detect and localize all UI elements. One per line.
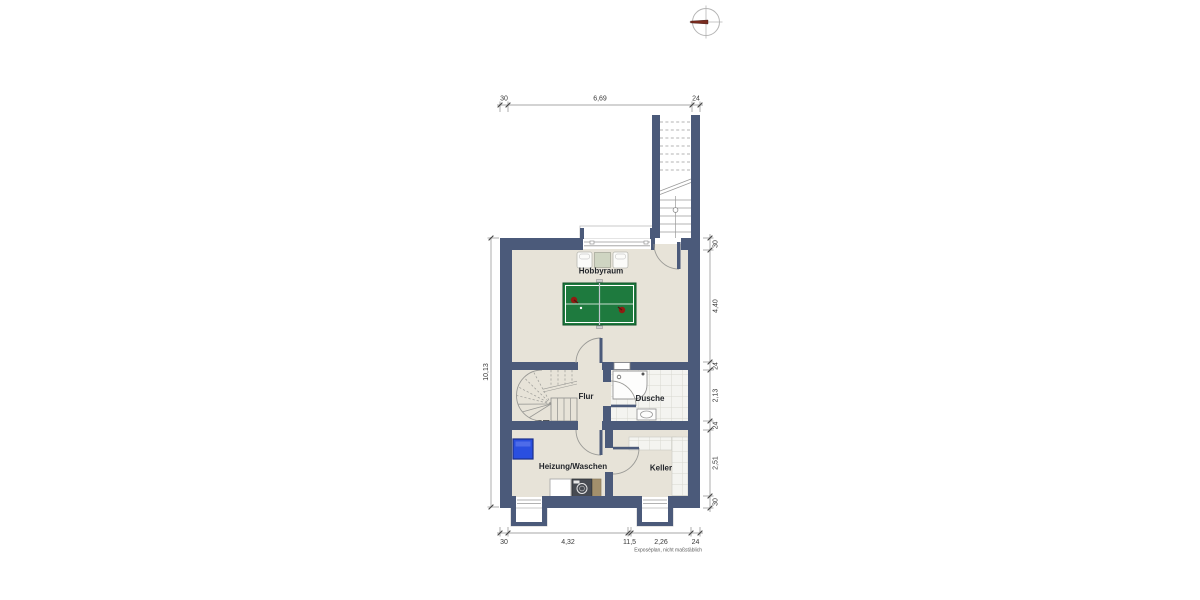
hobbyraum-window [583,239,651,249]
dim-label: 24 [713,422,720,430]
dim-label: 30 [500,539,508,546]
dryer-unit [572,479,592,497]
floor-plan-page: Hobbyraum Flur Dusche Heizung/Waschen Ke… [0,0,1200,600]
table-tennis-ball [580,307,582,309]
dimension-left: 10,13 [483,236,499,510]
dim-label: 24 [692,96,700,103]
exterior-staircase [660,122,691,238]
dim-label: 24 [713,362,720,370]
dim-label: 4,40 [713,299,720,313]
dim-label: 2,13 [713,389,720,403]
dim-label: 11,5 [623,539,636,546]
dim-label: 30 [500,96,508,103]
window-well-left [511,508,547,526]
heizung-window [516,497,542,507]
room-label-dusche: Dusche [636,394,665,403]
room-label-flur: Flur [578,392,593,401]
counter [593,479,602,497]
dim-label: 24 [692,539,700,546]
sink [637,409,656,420]
dusche-vent-window [614,363,630,370]
dim-label: 6,69 [593,96,607,103]
dim-label: 30 [713,498,720,506]
dimension-right: 30 4,40 24 2,13 24 2,51 30 [703,234,720,512]
boiler-unit [513,439,533,459]
dim-label: 4,32 [561,539,575,546]
room-label-keller: Keller [650,464,672,473]
keller-window [642,497,668,507]
dim-label: 10,13 [483,363,490,381]
dimension-top: 30 6,69 24 [497,96,703,113]
table-tennis-table [563,280,636,329]
dim-label: 30 [713,240,720,248]
dimension-bottom: 30 4,32 11,5 2,26 24 Exposéplan, nicht m… [497,527,703,554]
washing-machine [550,479,571,497]
room-label-hobbyraum: Hobbyraum [579,267,623,276]
disclaimer-text: Exposéplan, nicht maßstäblich [634,548,702,554]
window-well-right [637,508,673,526]
compass-north-icon [690,6,723,39]
window-well-top [580,226,654,239]
room-label-heizung-waschen: Heizung/Waschen [539,462,607,471]
dim-label: 2,51 [713,456,720,470]
floor-plan-canvas: Hobbyraum Flur Dusche Heizung/Waschen Ke… [0,0,1200,600]
dim-label: 2,26 [654,539,668,546]
